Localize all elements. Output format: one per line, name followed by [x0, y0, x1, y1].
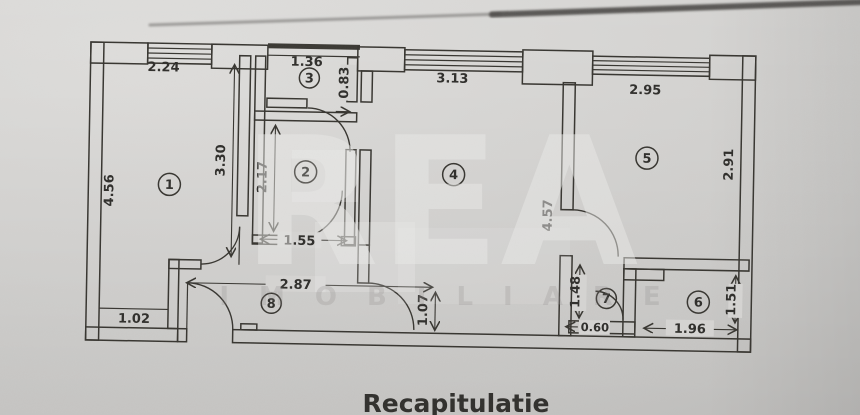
photo-grain	[0, 0, 860, 415]
floorplan-svg: 2.24 1.36 3.13 2.95 1.02 2.87 1.55 1.96 …	[0, 0, 860, 415]
floorplan-photo: 2.24 1.36 3.13 2.95 1.02 2.87 1.55 1.96 …	[0, 0, 860, 415]
